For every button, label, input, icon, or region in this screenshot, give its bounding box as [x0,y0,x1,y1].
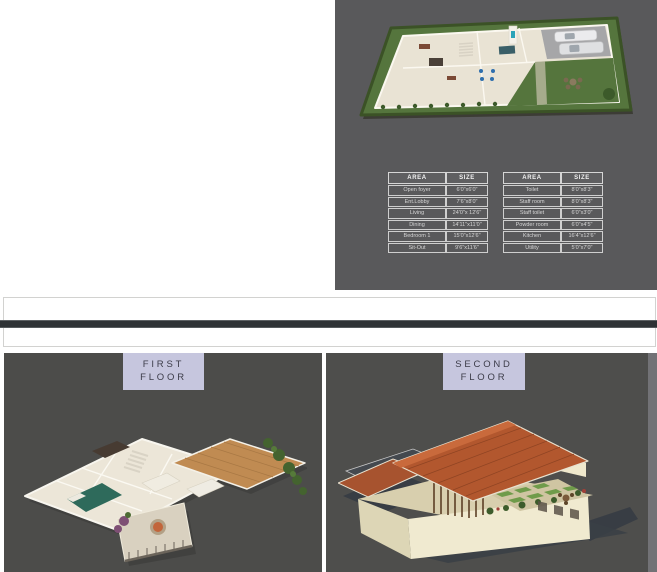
second-floor-render-image [338,401,638,563]
table-cell: Bedroom 1 [388,231,446,242]
table-cell: 16'4"x12'6" [561,231,603,242]
ground-floor-sheet: AREA SIZE Open foyer6'0"x6'0"Ent.Lobby7'… [335,0,657,290]
table-cell: 6'0"x3'0" [561,208,603,219]
column-header-size: SIZE [446,172,488,184]
table-cell: 7'6"x8'0" [446,197,488,208]
table-cell: Open foyer [388,185,446,196]
floor-label-line: FLOOR [140,372,187,385]
page-divider-bar [0,320,657,328]
floor-label-line: FIRST [143,359,184,372]
table-cell: Staff room [503,197,561,208]
first-floor-panel: FIRST FLOOR [4,353,322,572]
table-row: Staff room8'0"x8'3" [503,197,603,208]
table-row: Sit-Out9'6"x11'6" [388,243,488,254]
table-cell: Staff toilet [503,208,561,219]
ground-floor-render-image [359,6,633,128]
table-row: Utility5'0"x7'0" [503,243,603,254]
table-cell: 6'0"x4'5" [561,220,603,231]
table-cell: Kitchen [503,231,561,242]
table-cell: 14'11"x11'0" [446,220,488,231]
document-canvas: AREA SIZE Open foyer6'0"x6'0"Ent.Lobby7'… [0,0,657,572]
table-cell: Dining [388,220,446,231]
table-row: Powder room6'0"x4'5" [503,220,603,231]
table-cell: Living [388,208,446,219]
floor-label-line: SECOND [455,359,512,372]
driveway [541,26,611,59]
first-floor-render-image [22,411,307,566]
column-header-area: AREA [503,172,561,184]
right-gray-strip [648,353,657,572]
table-cell: Ent.Lobby [388,197,446,208]
table-cell: 8'0"x8'3" [561,185,603,196]
table-cell: 8'0"x8'3" [561,197,603,208]
second-floor-label: SECOND FLOOR [443,353,525,390]
second-floor-panel: SECOND FLOOR [326,353,648,572]
table-row: Staff toilet6'0"x3'0" [503,208,603,219]
table-cell: 6'0"x6'0" [446,185,488,196]
table-row: Ent.Lobby7'6"x8'0" [388,197,488,208]
floor-label-line: FLOOR [461,372,508,385]
table-header-row: AREA SIZE [503,172,603,184]
table-row: Bedroom 115'0"x12'6" [388,231,488,242]
table-row: Open foyer6'0"x6'0" [388,185,488,196]
table-row: Living24'0"x 12'6" [388,208,488,219]
column-header-area: AREA [388,172,446,184]
table-row: Toilet8'0"x8'3" [503,185,603,196]
table-cell: 24'0"x 12'6" [446,208,488,219]
table-cell: Powder room [503,220,561,231]
table-cell: 9'6"x11'6" [446,243,488,254]
first-floor-label: FIRST FLOOR [123,353,204,390]
table-cell: 5'0"x7'0" [561,243,603,254]
column-header-size: SIZE [561,172,603,184]
table-row: Dining14'11"x11'0" [388,220,488,231]
table-row: Kitchen16'4"x12'6" [503,231,603,242]
table-cell: Sit-Out [388,243,446,254]
table-cell: Toilet [503,185,561,196]
table-header-row: AREA SIZE [388,172,488,184]
table-cell: 15'0"x12'6" [446,231,488,242]
area-size-table-left: AREA SIZE Open foyer6'0"x6'0"Ent.Lobby7'… [388,171,488,254]
area-size-table-right: AREA SIZE Toilet8'0"x8'3"Staff room8'0"x… [503,171,603,254]
table-cell: Utility [503,243,561,254]
